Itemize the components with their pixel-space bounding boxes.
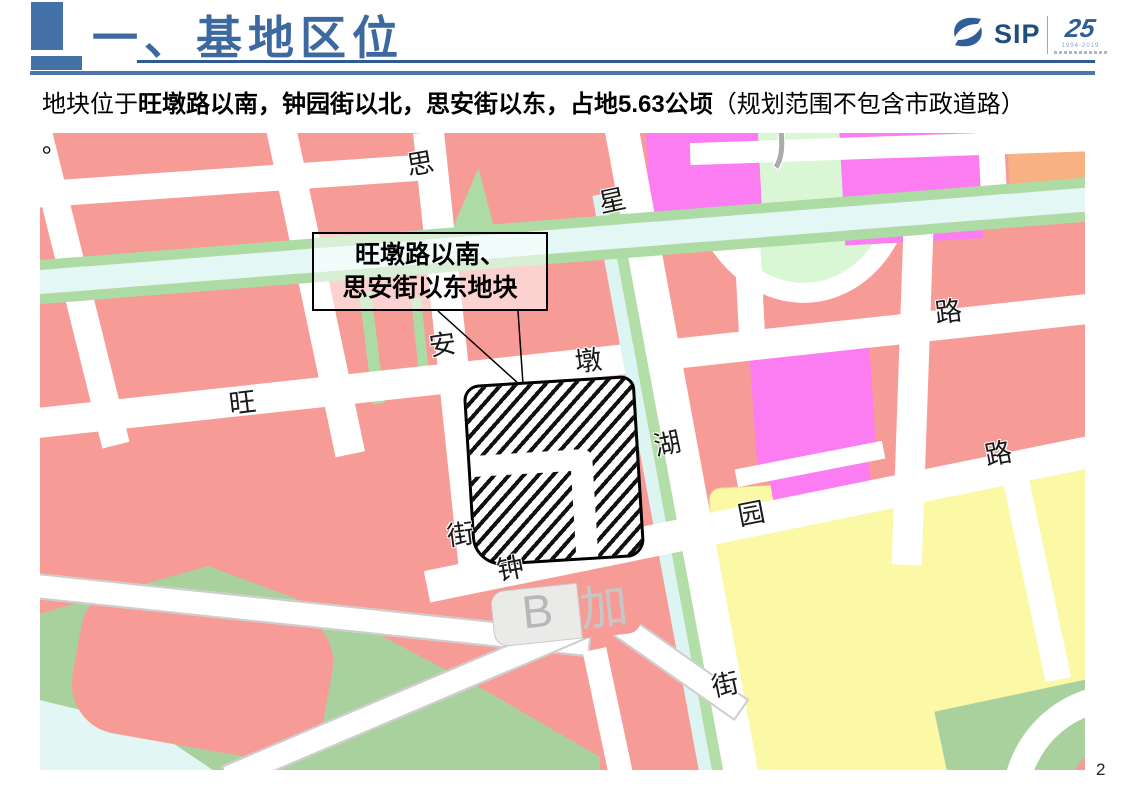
sip-logo-text: SIP [994, 19, 1041, 50]
callout-line1: 旺墩路以南、 [314, 239, 546, 272]
location-description-prefix: 地块位于 [42, 91, 138, 118]
callout-box: 旺墩路以南、 思安街以东地块 [312, 232, 548, 311]
map-label-星: 星 [596, 185, 628, 217]
map-label-安: 安 [427, 330, 457, 360]
plot-internal-road-v [570, 449, 599, 564]
map-label-墩: 墩 [573, 346, 603, 376]
map-label-园: 园 [736, 499, 768, 531]
location-description: 地块位于旺墩路以南，钟园街以北，思安街以东，占地5.63公顷（规划范围不包含市政… [42, 88, 1108, 122]
page-number: 2 [1096, 760, 1105, 780]
page-title: 一、基地区位 [92, 2, 404, 68]
map-label-钟: 钟 [495, 554, 527, 586]
map-label-街: 街 [709, 669, 741, 701]
road-top-left [40, 154, 430, 208]
sip-swoosh-icon [948, 12, 988, 57]
map-label-广: 广 [768, 133, 835, 174]
logo-divider [1047, 16, 1048, 54]
map-label-路: 路 [933, 297, 963, 327]
header-rule-thin [137, 60, 1095, 63]
anniversary-number: 25 [1064, 15, 1098, 41]
location-description-paren: （规划范围不包含市政道路） [713, 91, 1025, 118]
anniversary-years: 1994-2019 [1062, 43, 1100, 49]
anniversary-small-text [1054, 51, 1108, 54]
callout-line2: 思安街以东地块 [314, 272, 546, 305]
header-rule-thick [30, 71, 1095, 75]
slide: 一、基地区位 SIP 25 1994-2019 地块位于旺墩路以南，钟园街以北，… [0, 0, 1123, 794]
title-decoration-square [31, 2, 63, 50]
map-label-思: 思 [405, 149, 436, 180]
map-label-湖: 湖 [651, 428, 683, 460]
site-location-map: 思安街星湖街旺墩路路钟园广B加 旺墩路以南、 思安街以东地块 [40, 133, 1085, 770]
location-description-period: 。 [42, 124, 66, 159]
map-label-旺: 旺 [227, 388, 257, 418]
map-label-B: B [520, 587, 555, 636]
plot-hatched [463, 375, 646, 567]
map-label-加: 加 [578, 583, 631, 636]
location-description-bold: 旺墩路以南，钟园街以北，思安街以东，占地5.63公顷 [138, 91, 713, 118]
map-label-街: 街 [445, 520, 475, 550]
anniversary-mark: 25 1994-2019 [1054, 15, 1108, 54]
road-pill-south [583, 647, 638, 770]
title-decoration-bar [31, 56, 82, 70]
sip-logo: SIP 25 1994-2019 [948, 12, 1108, 57]
map-label-路: 路 [983, 439, 1015, 471]
map-shape-layer: 思安街星湖街旺墩路路钟园广B加 [40, 133, 1085, 770]
